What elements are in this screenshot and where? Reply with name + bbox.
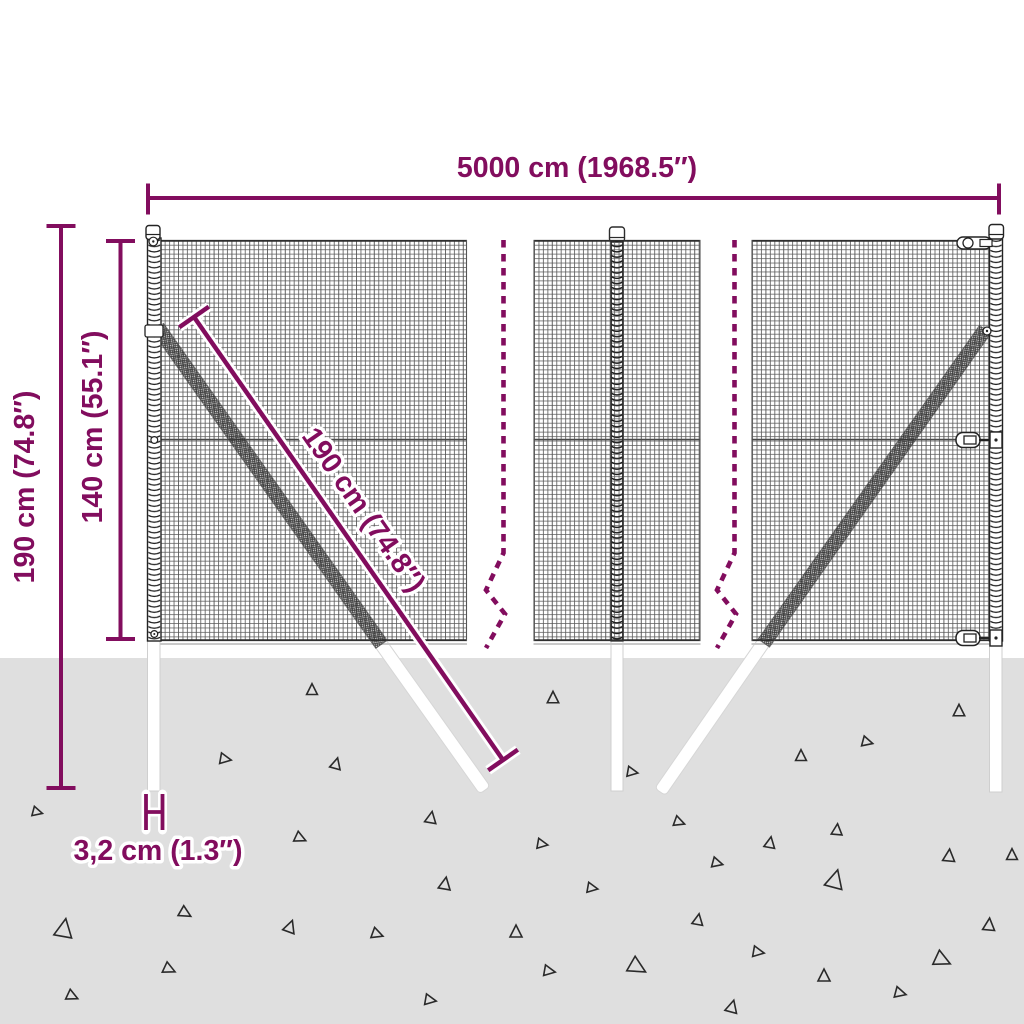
svg-text:5000 cm (1968.5″): 5000 cm (1968.5″) xyxy=(457,152,697,184)
svg-text:190 cm (74.8″): 190 cm (74.8″) xyxy=(9,391,41,584)
svg-text:140 cm (55.1″): 140 cm (55.1″) xyxy=(77,331,109,524)
svg-text:3,2 cm (1.3″): 3,2 cm (1.3″) xyxy=(74,835,243,867)
